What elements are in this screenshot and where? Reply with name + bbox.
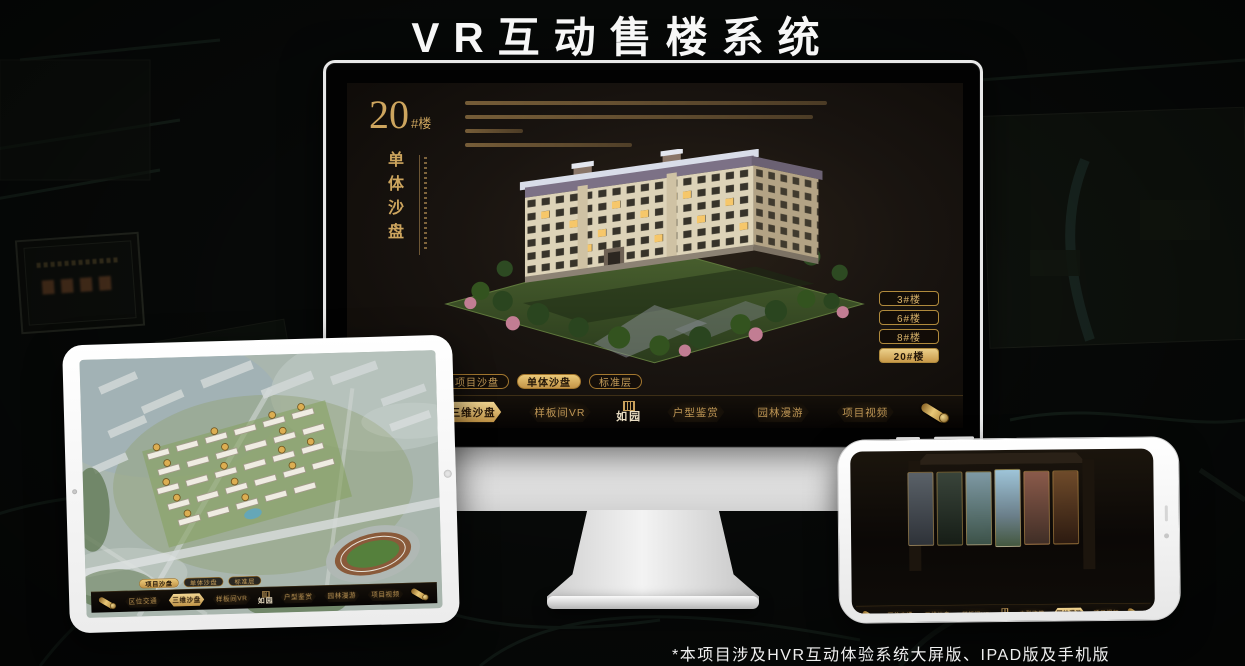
menu-item-showroom-vr[interactable]: 样板间VR [958,608,995,614]
menu-item-garden-roam[interactable]: 园林漫游 [322,588,361,603]
scroll-icon[interactable] [97,593,119,611]
menu-item-label: 园林漫游 [1057,609,1082,614]
menu-item-label: 项目视频 [1094,609,1119,614]
phone-screen: 区位交通 三维沙盘 样板间VR 如园 户型鉴赏 园林漫游 项目视频 [850,448,1155,613]
menu-item-label: 户型鉴赏 [673,405,719,420]
menu-item-location[interactable]: 区位交通 [124,594,163,609]
tablet-camera-icon [72,489,77,494]
gold-divider-line [419,155,420,255]
phone-camera-icon [1164,533,1169,538]
tab-project-sandtable[interactable]: 项目沙盘 [139,578,179,588]
menu-item-label: 户型鉴赏 [1019,609,1044,613]
scene-card[interactable] [965,471,992,545]
menu-item-label: 户型鉴赏 [284,592,313,602]
menu-item-3d-sandtable[interactable]: 三维沙盘 [167,593,206,608]
sandtable-tabs: 项目沙盘 单体沙盘 标准层 [445,374,642,389]
scroll-icon[interactable] [1127,605,1146,614]
menu-item-showroom-vr[interactable]: 样板间VR [211,591,253,606]
tab-standard-floor[interactable]: 标准层 [589,374,642,389]
phone-menubar: 区位交通 三维沙盘 样板间VR 如园 户型鉴赏 园林漫游 项目视频 [856,603,1151,614]
floor-button-active[interactable]: 20#楼 [879,348,939,363]
tablet-screen: 项目沙盘 单体沙盘 标准层 区位交通 三维沙盘 样板间VR 如园 户型鉴赏 [79,350,442,618]
building-subtitle-vertical: 单体沙盘 [381,151,405,247]
phone-volume-button[interactable] [934,436,974,439]
monitor-stand-base [547,596,759,609]
building-number: 20 [369,92,409,137]
gate-column [1082,459,1095,569]
menu-item-label: 样板间VR [962,610,990,614]
ruyuan-logo: 如园 [616,401,642,423]
scene-card[interactable] [994,469,1021,547]
scene-gallery [907,468,1079,548]
menu-item-label: 项目视频 [842,405,888,420]
tablet-device: 项目沙盘 单体沙盘 标准层 区位交通 三维沙盘 样板间VR 如园 户型鉴赏 [62,335,460,634]
menu-item-label: 项目视频 [371,589,400,599]
text-line [465,143,632,147]
tablet-home-button[interactable] [444,470,452,478]
logo-text: 如园 [616,412,642,423]
footnote: *本项目涉及HVR互动体验系统大屏版、IPAD版及手机版 [672,641,1110,665]
menu-item-label: 三维沙盘 [172,595,201,605]
text-line [465,115,813,119]
menu-item-label: 园林漫游 [758,405,804,420]
scroll-icon[interactable] [919,398,953,426]
menu-item-label: 园林漫游 [327,591,356,601]
menu-item-floorplans[interactable]: 户型鉴赏 [279,589,318,604]
scene-card[interactable] [936,471,963,545]
menu-item-project-video[interactable]: 项目视频 [366,587,405,602]
micro-english-caption [424,157,427,249]
tablet-nav: 项目沙盘 单体沙盘 标准层 区位交通 三维沙盘 样板间VR 如园 户型鉴赏 [90,551,437,613]
ruyuan-logo: 如园 [998,608,1012,614]
tab-single-sandtable[interactable]: 单体沙盘 [184,577,224,587]
menu-item-floorplans[interactable]: 户型鉴赏 [1015,607,1049,613]
seal-icon [1001,608,1008,614]
menu-item-floorplans[interactable]: 户型鉴赏 [665,401,727,423]
building-heading: 20#楼 [369,95,431,135]
background-award-plaque [15,232,145,334]
menu-item-label: 样板间VR [534,405,585,420]
menu-item-label: 三维沙盘 [450,405,496,420]
menu-item-3d-sandtable[interactable]: 三维沙盘 [920,608,954,613]
building-unit: #楼 [411,116,431,131]
logo-text: 如园 [258,597,274,604]
menu-item-project-video[interactable]: 项目视频 [1089,607,1123,614]
floor-button[interactable]: 3#楼 [879,291,939,306]
scene-card[interactable] [907,472,934,546]
poster: VR互动售楼系统 20#楼 单体沙盘 [0,0,1245,666]
phone-side-button[interactable] [896,437,920,440]
menu-item-label: 区位交通 [129,596,158,606]
menu-item-location[interactable]: 区位交通 [883,609,917,614]
page-title: VR互动售楼系统 [0,4,1245,65]
ruyuan-logo: 如园 [258,591,274,605]
seal-icon [262,591,270,597]
menu-item-garden-roam[interactable]: 园林漫游 [750,401,812,423]
menu-item-showroom-vr[interactable]: 样板间VR [526,401,593,423]
menu-item-label: 样板间VR [216,594,248,604]
menu-item-label: 区位交通 [888,611,913,614]
tab-project-sandtable[interactable]: 项目沙盘 [445,374,509,389]
scroll-icon[interactable] [410,584,432,602]
scene-card[interactable] [1052,470,1079,544]
phone-nav: 区位交通 三维沙盘 样板间VR 如园 户型鉴赏 园林漫游 项目视频 [856,588,1151,611]
phone-speaker-icon [1165,505,1168,521]
scene-card[interactable] [1023,471,1050,545]
tab-single-sandtable[interactable]: 单体沙盘 [517,374,581,389]
menu-item-project-video[interactable]: 项目视频 [834,401,896,423]
building-3d-model[interactable] [442,149,867,367]
menu-item-label: 三维沙盘 [925,610,950,613]
menu-item-garden-roam[interactable]: 园林漫游 [1052,607,1086,614]
floor-button-group: 3#楼 6#楼 8#楼 20#楼 [879,291,939,363]
seal-icon [623,401,635,411]
text-line [465,101,827,105]
gate-silhouette [916,452,1086,465]
floor-button[interactable]: 6#楼 [879,310,939,325]
floor-button[interactable]: 8#楼 [879,329,939,344]
phone-device: 区位交通 三维沙盘 样板间VR 如园 户型鉴赏 园林漫游 项目视频 [837,436,1181,624]
scroll-icon[interactable] [861,608,880,614]
text-line [465,129,523,133]
tab-standard-floor[interactable]: 标准层 [228,576,261,586]
